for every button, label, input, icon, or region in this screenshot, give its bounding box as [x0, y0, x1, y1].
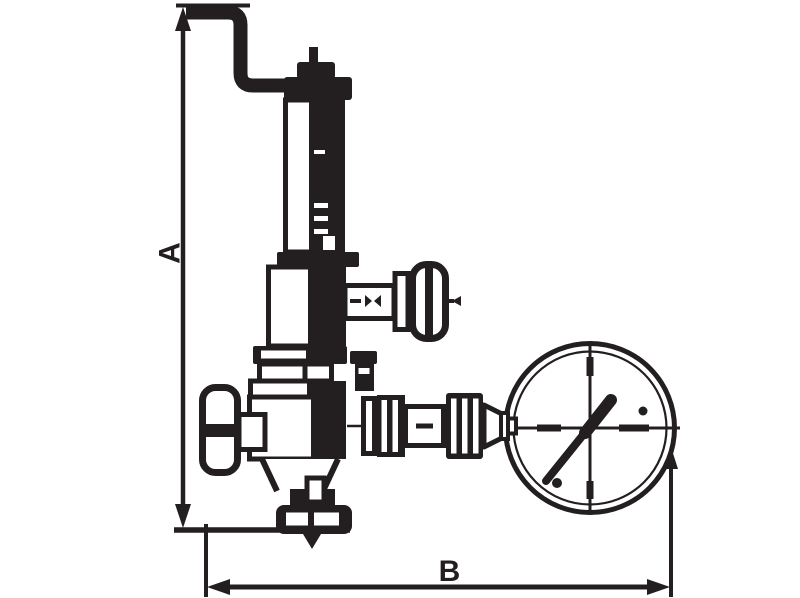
cap-ring: [284, 77, 352, 100]
centerline-dash: [350, 299, 361, 303]
valve-technical-drawing: A: [0, 0, 800, 598]
flange-slot: [286, 513, 308, 526]
neck-window: [307, 478, 324, 502]
rib-slot: [473, 399, 479, 454]
housing-tube: [286, 100, 312, 252]
dimension-a-label: A: [154, 242, 187, 264]
rib-slot: [451, 399, 457, 454]
pressure-gauge: [506, 344, 681, 513]
body-column: [311, 397, 346, 459]
arrow-down-icon: [175, 504, 191, 528]
centerline-dash: [416, 424, 433, 429]
rib-slot: [393, 400, 399, 452]
boss-slot: [359, 368, 370, 374]
mid-column: [308, 267, 346, 346]
boss-cap: [350, 351, 377, 364]
bottom-outlet: [276, 505, 352, 549]
detail-slot: [323, 236, 335, 250]
handwheel-hub: [206, 424, 234, 437]
cap-small: [297, 62, 335, 79]
centerline-chevron: [452, 296, 461, 306]
tee-boss: [350, 351, 377, 391]
dimension-b-label: B: [439, 555, 461, 588]
handwheel-stem: [239, 415, 265, 450]
detail-mark: [314, 150, 325, 154]
bonnet-cap: [284, 47, 352, 100]
thread-mark: [314, 203, 328, 208]
drawing-canvas: A: [0, 0, 800, 598]
thread-mark: [314, 229, 328, 234]
gauge-nipple: [508, 419, 516, 434]
mid-shell: [269, 267, 311, 346]
spring-housing: [277, 98, 359, 267]
flange-band-2: [260, 364, 332, 381]
flange-slot: [261, 351, 306, 359]
mid-flanges: [253, 346, 347, 381]
arrow-right-icon: [647, 579, 670, 595]
branch-flange: [364, 399, 375, 454]
gauge-connection: [347, 393, 516, 459]
mid-section: [269, 267, 347, 346]
flow-arrow-down-icon: [303, 534, 321, 549]
ribbed-nut: [377, 395, 405, 457]
rib-slot: [382, 400, 388, 452]
gauge-screw-dot: [639, 407, 648, 416]
thread-mark: [314, 216, 328, 221]
flange-slot: [314, 513, 339, 526]
rib-slot: [462, 399, 468, 454]
outlet-flange: [395, 274, 408, 330]
knob-divider: [425, 268, 433, 335]
gauge-screw-dot: [552, 478, 562, 488]
upper-outlet: [345, 265, 461, 339]
arrow-left-icon: [207, 579, 230, 595]
